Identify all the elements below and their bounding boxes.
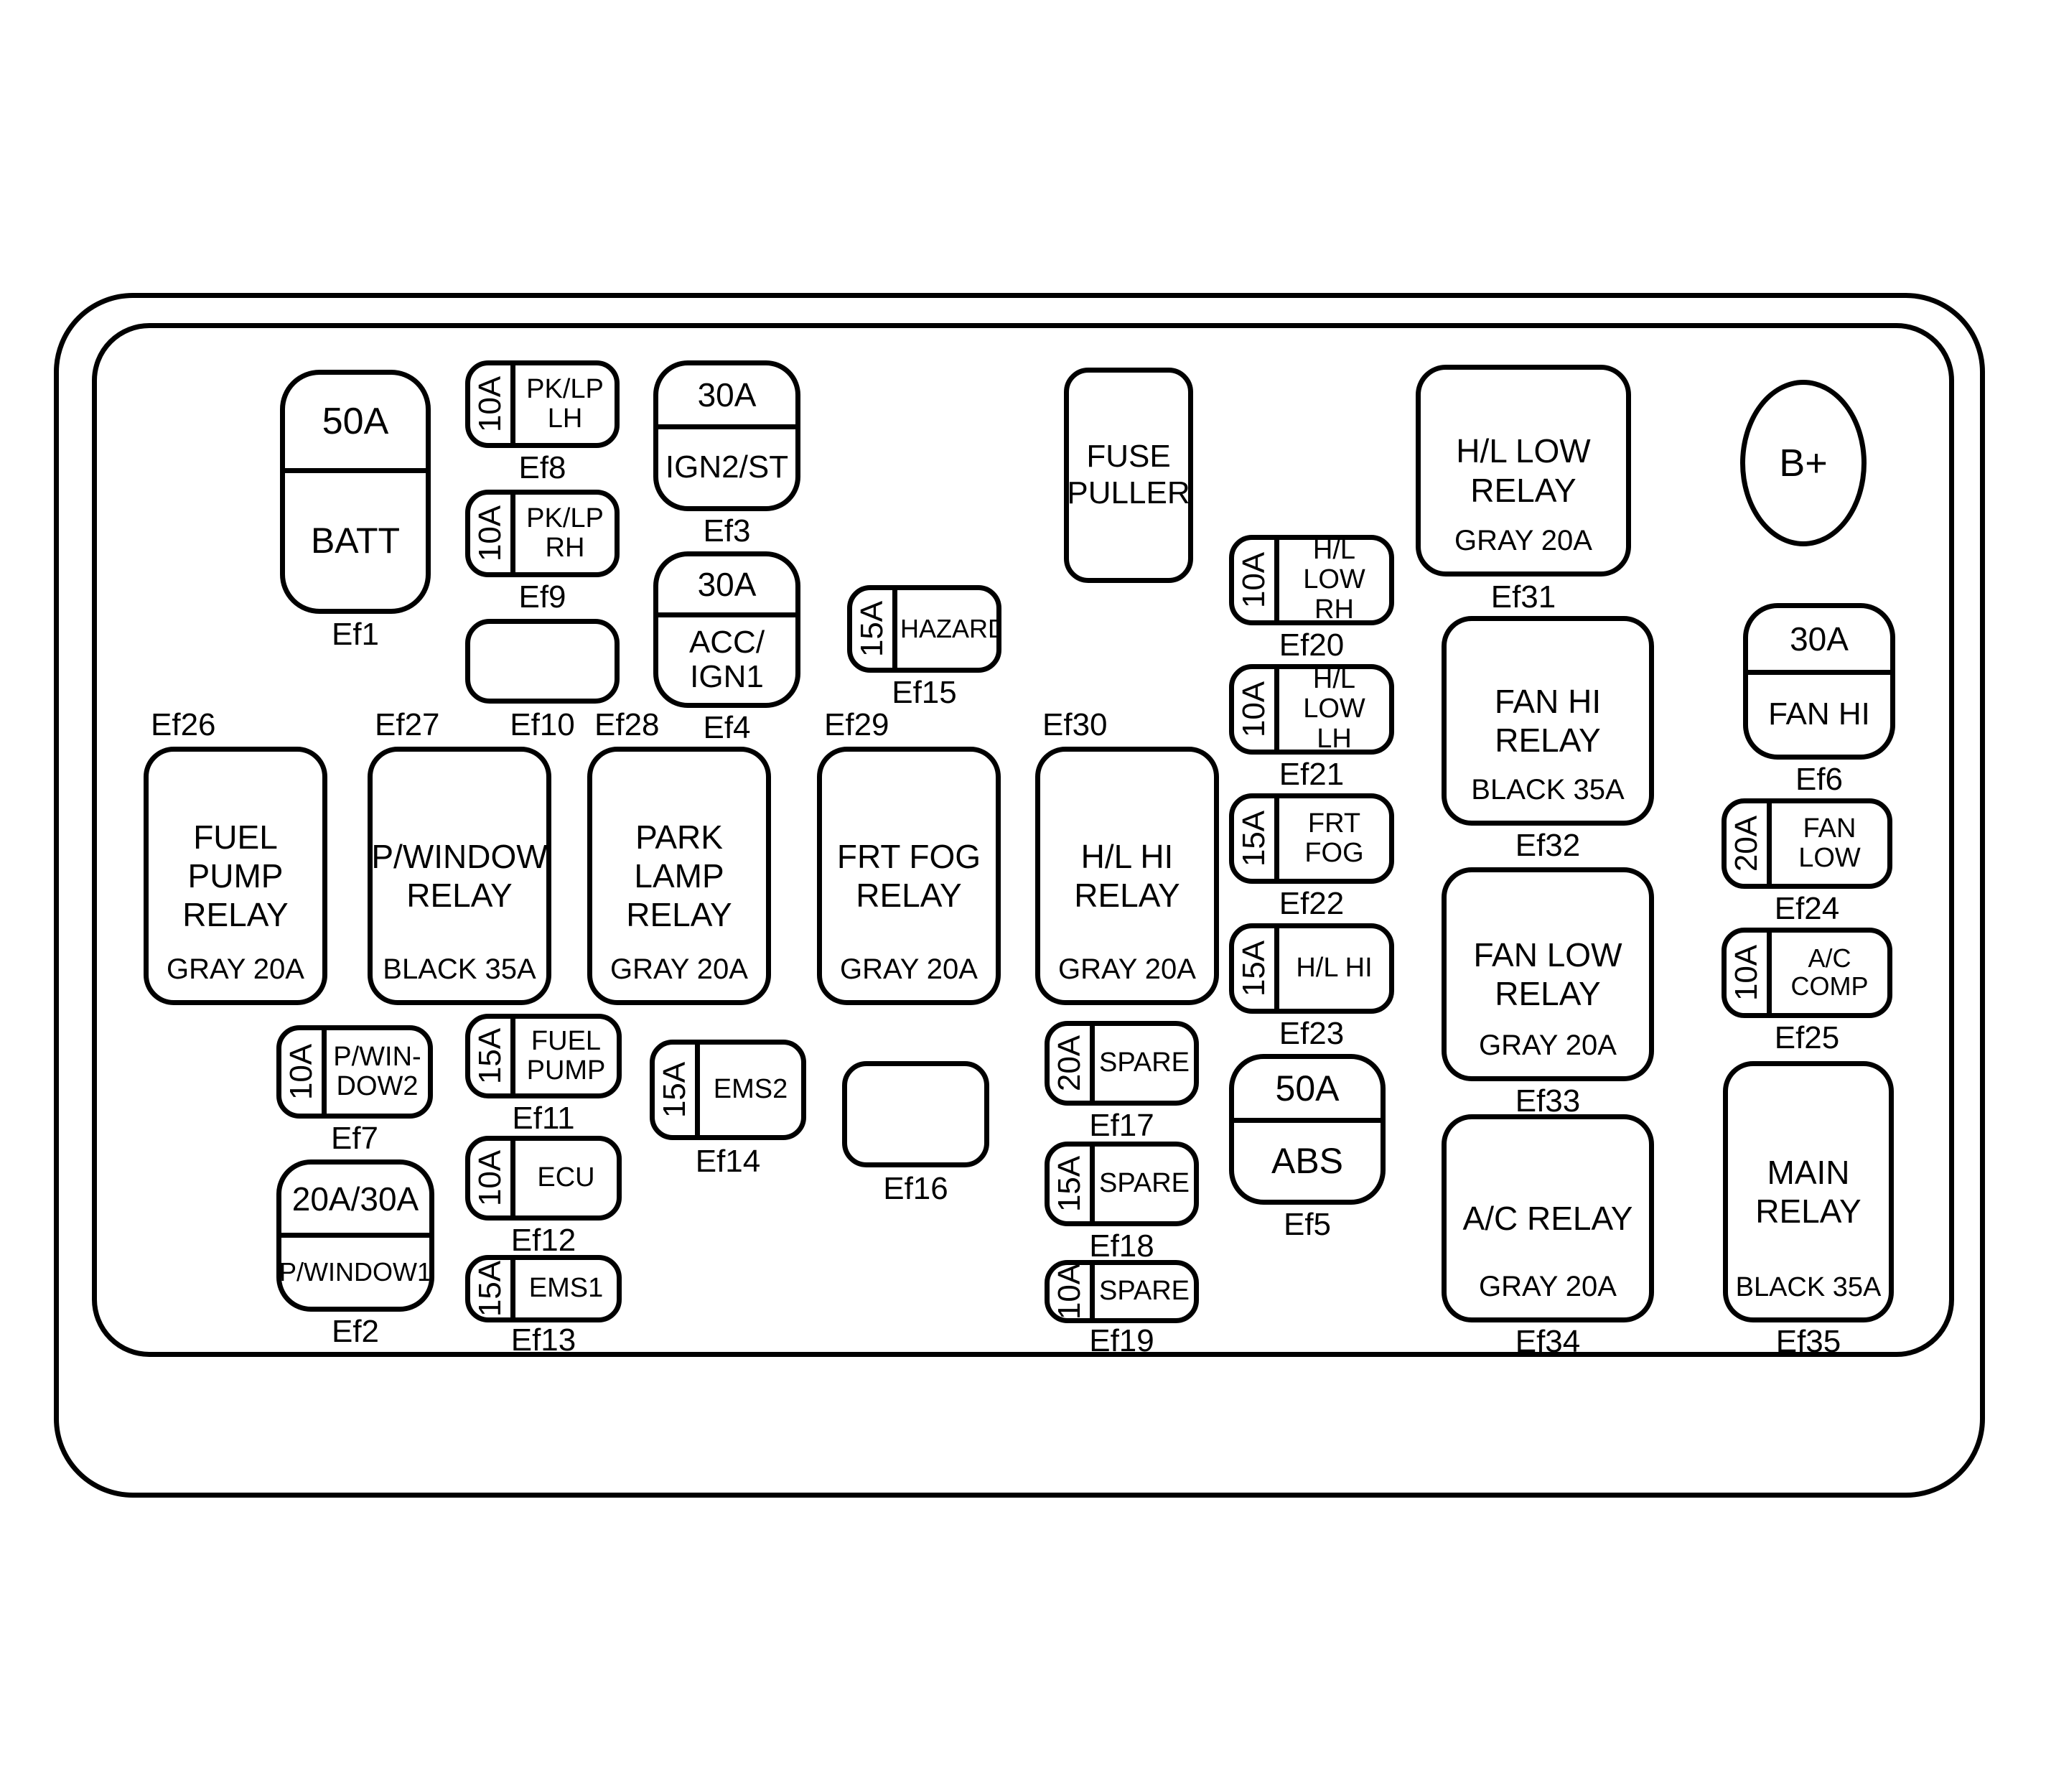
relay-ef29-color: GRAY 20A <box>822 953 996 986</box>
caption-ef32: Ef32 <box>1442 830 1654 862</box>
battery-terminal-label: B+ <box>1779 441 1828 485</box>
battery-terminal: B+ <box>1740 380 1867 546</box>
fuse-ef18: 15A SPARE <box>1045 1142 1199 1226</box>
fuse-ef1-amp: 50A <box>285 375 426 473</box>
caption-ef6: Ef6 <box>1743 764 1895 795</box>
fuse-ef24-amp: 20A <box>1727 803 1772 884</box>
caption-ef9: Ef9 <box>465 582 620 613</box>
relay-ef29: FRT FOG RELAY GRAY 20A <box>817 747 1001 1005</box>
caption-ef19: Ef19 <box>1045 1325 1199 1357</box>
fuse-ef4-label: ACC/ IGN1 <box>658 617 795 703</box>
fuse-puller-label: FUSE PULLER <box>1067 439 1190 511</box>
relay-ef34-color: GRAY 20A <box>1447 1271 1649 1303</box>
fuse-ef6: 30A FAN HI <box>1743 603 1895 760</box>
fuse-ef7-label: P/WIN- DOW2 <box>327 1030 428 1114</box>
caption-ef34: Ef34 <box>1442 1326 1654 1358</box>
caption-ef2: Ef2 <box>276 1316 434 1348</box>
fuse-ef3-amp: 30A <box>658 365 795 429</box>
relay-ef34-label: A/C RELAY <box>1463 1199 1633 1238</box>
fuse-ef9-label: PK/LP RH <box>515 495 615 572</box>
fuse-ef12: 10A ECU <box>465 1136 622 1221</box>
fuse-ef17: 20A SPARE <box>1045 1021 1199 1106</box>
fuse-ef8: 10A PK/LP LH <box>465 360 620 448</box>
caption-ef15: Ef15 <box>847 677 1001 709</box>
fuse-ef5-amp: 50A <box>1234 1059 1381 1123</box>
fuse-ef3: 30A IGN2/ST <box>653 360 800 511</box>
fuse-ef1-label: BATT <box>285 473 426 609</box>
fuse-ef15: 15A HAZARD <box>847 585 1001 673</box>
caption-ef27: Ef27 <box>375 709 440 741</box>
fuse-ef14-amp: 15A <box>655 1045 700 1135</box>
relay-ef28-color: GRAY 20A <box>592 953 766 986</box>
fuse-ef2-amp: 20A/30A <box>281 1165 429 1238</box>
fuse-ef22: 15A FRT FOG <box>1229 793 1394 884</box>
fuse-ef9: 10A PK/LP RH <box>465 490 620 577</box>
fuse-ef18-label: SPARE <box>1095 1147 1194 1221</box>
fuse-puller: FUSE PULLER <box>1064 368 1193 583</box>
caption-ef30: Ef30 <box>1042 709 1108 741</box>
fuse-ef2: 20A/30A P/WINDOW1 <box>276 1159 434 1312</box>
fuse-ef24-label: FAN LOW <box>1772 803 1887 884</box>
relay-ef33: FAN LOW RELAY GRAY 20A <box>1442 867 1654 1081</box>
caption-ef17: Ef17 <box>1045 1110 1199 1142</box>
fuse-ef12-label: ECU <box>515 1141 617 1215</box>
fuse-ef17-amp: 20A <box>1050 1026 1095 1101</box>
blank-fuse-ef16 <box>842 1061 989 1167</box>
fuse-ef18-amp: 15A <box>1050 1147 1095 1221</box>
caption-ef21: Ef21 <box>1229 759 1394 790</box>
fuse-ef6-label: FAN HI <box>1748 675 1890 755</box>
relay-ef27-color: BLACK 35A <box>373 953 546 986</box>
fuse-ef13-label: EMS1 <box>515 1260 617 1317</box>
caption-ef3: Ef3 <box>653 515 800 547</box>
fuse-ef21-label: H/L LOW LH <box>1279 669 1389 750</box>
relay-ef29-label: FRT FOG RELAY <box>837 837 981 915</box>
fuse-ef5-label: ABS <box>1234 1123 1381 1200</box>
fuse-ef21: 10A H/L LOW LH <box>1229 664 1394 755</box>
caption-ef11: Ef11 <box>465 1103 622 1134</box>
caption-ef4: Ef4 <box>653 712 800 744</box>
fuse-ef20-amp: 10A <box>1234 540 1279 620</box>
fuse-ef3-label: IGN2/ST <box>658 429 795 506</box>
relay-ef31-label: H/L LOW RELAY <box>1456 431 1590 510</box>
relay-ef35-label: MAIN RELAY <box>1755 1153 1861 1231</box>
caption-ef33: Ef33 <box>1442 1086 1654 1117</box>
fuse-ef2-label: P/WINDOW1 <box>281 1238 429 1307</box>
blank-fuse-ef10 <box>465 619 620 704</box>
relay-ef32-label: FAN HI RELAY <box>1495 682 1601 760</box>
fuse-ef11-amp: 15A <box>470 1019 515 1093</box>
caption-ef13: Ef13 <box>465 1325 622 1356</box>
fuse-ef22-label: FRT FOG <box>1279 798 1389 879</box>
caption-ef35: Ef35 <box>1723 1326 1894 1358</box>
fuse-ef22-amp: 15A <box>1234 798 1279 879</box>
relay-ef28-label: PARK LAMP RELAY <box>592 818 766 935</box>
fuse-ef9-amp: 10A <box>470 495 515 572</box>
relay-ef35: MAIN RELAY BLACK 35A <box>1723 1061 1894 1322</box>
fuse-ef19-label: SPARE <box>1095 1265 1194 1318</box>
caption-ef16: Ef16 <box>842 1173 989 1205</box>
fuse-box-diagram: 50A BATT Ef1 10A PK/LP LH Ef8 10A PK/LP … <box>0 0 2046 1792</box>
fuse-ef25: 10A A/C COMP <box>1722 928 1892 1018</box>
fuse-ef7-amp: 10A <box>281 1030 327 1114</box>
fuse-ef25-label: A/C COMP <box>1772 933 1887 1013</box>
caption-ef20: Ef20 <box>1229 630 1394 661</box>
relay-ef33-label: FAN LOW RELAY <box>1473 935 1622 1014</box>
caption-ef24: Ef24 <box>1722 893 1892 925</box>
fuse-ef11: 15A FUEL PUMP <box>465 1014 622 1098</box>
caption-ef26: Ef26 <box>151 709 216 741</box>
relay-ef27-label: P/WINDOW RELAY <box>371 837 547 915</box>
fuse-ef19-amp: 10A <box>1050 1265 1095 1318</box>
relay-ef26-label: FUEL PUMP RELAY <box>149 818 322 935</box>
fuse-ef15-amp: 15A <box>852 590 897 668</box>
relay-ef28: PARK LAMP RELAY GRAY 20A <box>587 747 771 1005</box>
fuse-ef5: 50A ABS <box>1229 1054 1386 1205</box>
caption-ef14: Ef14 <box>650 1146 806 1177</box>
fuse-ef4: 30A ACC/ IGN1 <box>653 551 800 708</box>
relay-ef33-color: GRAY 20A <box>1447 1030 1649 1062</box>
caption-ef25: Ef25 <box>1722 1022 1892 1054</box>
relay-ef35-color: BLACK 35A <box>1728 1272 1889 1303</box>
caption-ef18: Ef18 <box>1045 1231 1199 1262</box>
caption-ef7: Ef7 <box>276 1123 433 1154</box>
fuse-ef24: 20A FAN LOW <box>1722 798 1892 889</box>
caption-ef12: Ef12 <box>465 1225 622 1256</box>
fuse-ef12-amp: 10A <box>470 1141 515 1215</box>
fuse-ef20: 10A H/L LOW RH <box>1229 535 1394 625</box>
fuse-ef13: 15A EMS1 <box>465 1255 622 1322</box>
caption-ef8: Ef8 <box>465 452 620 484</box>
relay-ef27: P/WINDOW RELAY BLACK 35A <box>368 747 551 1005</box>
relay-ef31: H/L LOW RELAY GRAY 20A <box>1416 365 1631 577</box>
fuse-ef8-label: PK/LP LH <box>515 365 615 443</box>
relay-ef31-color: GRAY 20A <box>1421 525 1626 557</box>
fuse-ef13-amp: 15A <box>470 1260 515 1317</box>
relay-ef30-color: GRAY 20A <box>1040 953 1214 986</box>
relay-ef30: H/L HI RELAY GRAY 20A <box>1035 747 1219 1005</box>
fuse-ef6-amp: 30A <box>1748 608 1890 675</box>
caption-ef28: Ef28 <box>594 709 660 741</box>
fuse-ef15-label: HAZARD <box>897 590 1001 668</box>
fuse-ef20-label: H/L LOW RH <box>1279 540 1389 620</box>
caption-ef22: Ef22 <box>1229 888 1394 920</box>
fuse-ef19: 10A SPARE <box>1045 1260 1199 1323</box>
fuse-ef17-label: SPARE <box>1095 1026 1194 1101</box>
fuse-ef21-amp: 10A <box>1234 669 1279 750</box>
caption-ef29: Ef29 <box>824 709 889 741</box>
relay-ef30-label: H/L HI RELAY <box>1074 837 1180 915</box>
fuse-ef4-amp: 30A <box>658 556 795 617</box>
caption-ef23: Ef23 <box>1229 1018 1394 1050</box>
fuse-ef23: 15A H/L HI <box>1229 923 1394 1014</box>
relay-ef32: FAN HI RELAY BLACK 35A <box>1442 616 1654 826</box>
fuse-ef14-label: EMS2 <box>700 1045 801 1135</box>
fuse-ef23-amp: 15A <box>1234 928 1279 1009</box>
fuse-ef14: 15A EMS2 <box>650 1040 806 1140</box>
relay-ef34: A/C RELAY GRAY 20A <box>1442 1114 1654 1322</box>
relay-ef26-color: GRAY 20A <box>149 953 322 986</box>
caption-ef5: Ef5 <box>1229 1209 1386 1241</box>
fuse-ef23-label: H/L HI <box>1279 928 1389 1009</box>
fuse-ef1: 50A BATT <box>280 370 431 614</box>
fuse-ef7: 10A P/WIN- DOW2 <box>276 1025 433 1119</box>
fuse-ef11-label: FUEL PUMP <box>515 1019 617 1093</box>
relay-ef32-color: BLACK 35A <box>1447 774 1649 806</box>
fuse-ef25-amp: 10A <box>1727 933 1772 1013</box>
caption-ef31: Ef31 <box>1416 582 1631 613</box>
relay-ef26: FUEL PUMP RELAY GRAY 20A <box>144 747 327 1005</box>
fuse-ef8-amp: 10A <box>470 365 515 443</box>
caption-ef1: Ef1 <box>280 619 431 650</box>
